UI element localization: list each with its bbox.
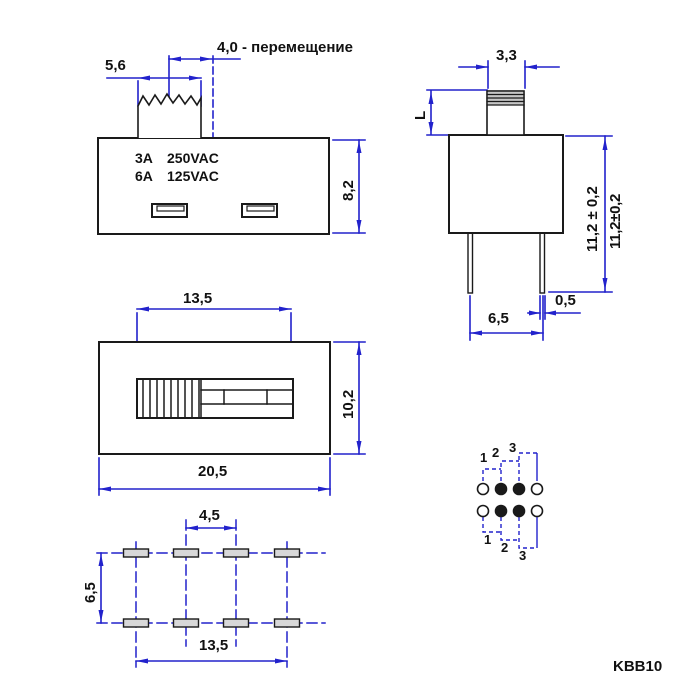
dim-body-length-top: 20,5 [198,464,227,480]
rating-current-1: 3A [135,151,153,166]
contact-circle-filled [514,506,525,517]
contact-circle-open [532,506,543,517]
dim-knob-width-front: 5,6 [105,58,126,74]
position-label-top-2: 2 [492,446,499,459]
contact-circle-filled [496,484,507,495]
dim-pin-pitch: 4,5 [199,508,220,524]
side-view-knob [487,91,524,135]
dim-knob-width-side: 3,3 [496,48,517,64]
front-view [98,56,365,234]
contact-circle-filled [496,506,507,517]
dim-knob-height-label: L [413,111,429,120]
pin-right [540,233,545,293]
mounting-slot-left [152,204,187,217]
contact-circles [478,484,543,517]
position-label-top-3: 3 [509,441,516,454]
front-view-knob [138,94,201,138]
dim-overall-height-note: 11,2±0,2 [608,194,624,249]
rating-voltage-1: 250VAC [167,151,219,166]
solder-pads [124,549,300,627]
pin-left [468,233,473,293]
top-view [99,307,365,496]
technical-drawing-kbb10: 4,0 - перемещение 5,6 8,2 3A 250VAC 6A 1… [0,0,700,700]
position-label-bottom-2: 2 [501,541,508,554]
hole-dimension-lines [101,528,287,661]
position-label-bottom-3: 3 [519,549,526,562]
rating-current-2: 6A [135,169,153,184]
dim-body-height-front: 8,2 [341,180,357,201]
hole-dimension-arrows [99,526,288,664]
part-number: KBB10 [613,658,662,675]
mounting-slot-right [242,204,277,217]
contact-circle-open [532,484,543,495]
dim-row-spacing: 6,5 [83,582,99,603]
contact-circle-open [478,484,489,495]
position-label-bottom-1: 1 [484,533,491,546]
position-label-top-1: 1 [480,451,487,464]
dim-pin-spacing-side: 6,5 [488,311,509,327]
rating-voltage-2: 125VAC [167,169,219,184]
dim-overall-height: 11,2 ± 0,2 [585,186,601,252]
dim-pin-span: 13,5 [199,638,228,654]
contact-circle-filled [514,484,525,495]
dim-slot-length: 13,5 [183,291,212,307]
side-view-body [449,135,563,233]
slider-slot [137,379,293,418]
dim-body-width-top: 10,2 [341,390,357,419]
dim-pin-width: 0,5 [555,293,576,309]
dim-travel-label: 4,0 - перемещение [217,40,353,56]
drawing-linework [0,0,700,700]
contact-circle-open [478,506,489,517]
